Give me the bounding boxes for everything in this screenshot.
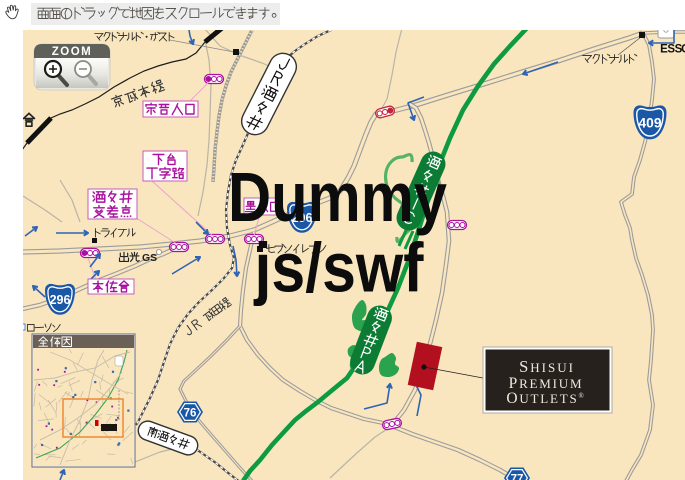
svg-text:SHISUI: SHISUI bbox=[519, 357, 575, 376]
svg-text:77: 77 bbox=[511, 474, 524, 480]
svg-text:296: 296 bbox=[50, 293, 71, 307]
svg-text:PREMIUM: PREMIUM bbox=[509, 375, 584, 392]
svg-text:76: 76 bbox=[184, 408, 197, 420]
svg-text:OUTLETS®: OUTLETS® bbox=[506, 390, 585, 407]
svg-text:Dummy: Dummy bbox=[228, 158, 447, 236]
svg-text:GS: GS bbox=[142, 252, 157, 264]
svg-text:ZOOM: ZOOM bbox=[52, 46, 93, 58]
svg-text:js/swf: js/swf bbox=[253, 229, 424, 307]
svg-text:409: 409 bbox=[639, 116, 662, 131]
svg-text:O: O bbox=[681, 44, 685, 56]
